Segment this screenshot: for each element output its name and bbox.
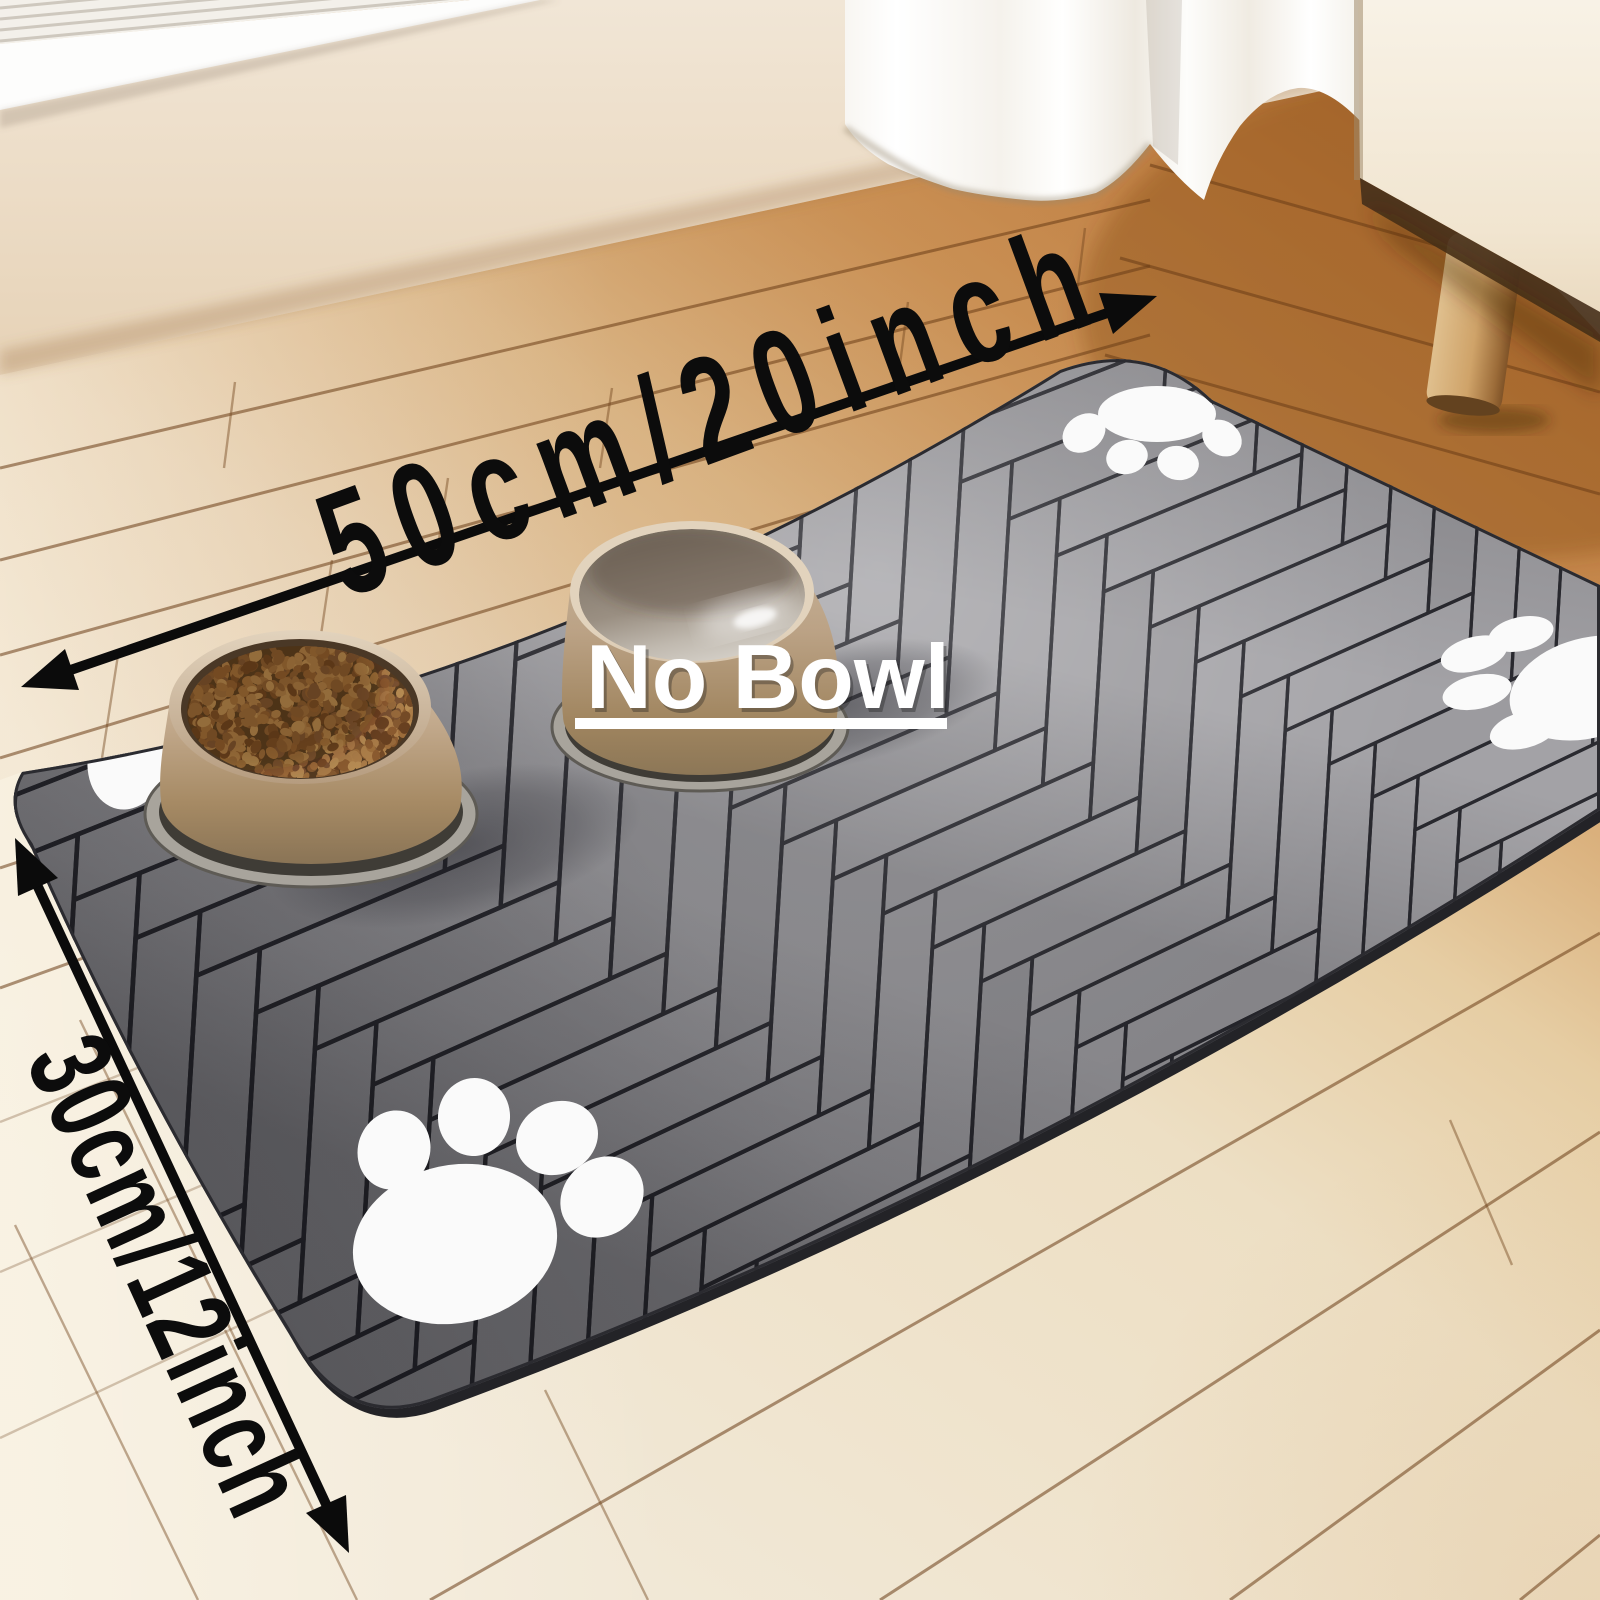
svg-text:No Bowl: No Bowl [586, 627, 950, 728]
